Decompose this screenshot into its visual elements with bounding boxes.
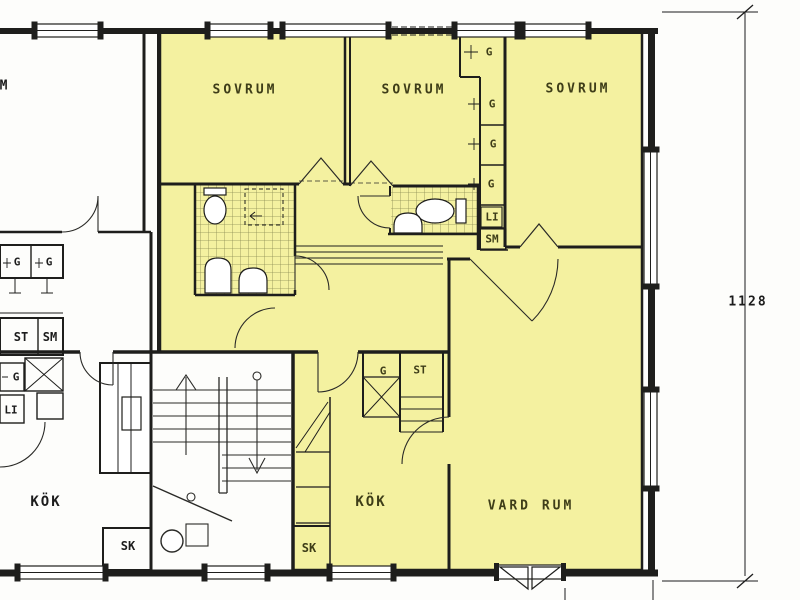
neighbor-apartment-walls [0, 31, 151, 570]
wardrobe-1-label: G [489, 99, 496, 110]
laundry-cupboard-label: SM [485, 234, 498, 245]
wardrobe-top-label: G [486, 47, 493, 58]
bedroom2-label: SOVRUM [382, 84, 447, 97]
neighbor-kitchen-label: KÖK [30, 495, 61, 509]
neighbor-cleaning-closet-label: SK [121, 540, 135, 552]
neighbor-laundry-cupboard-label: SM [43, 331, 57, 343]
linen-closet-label: LI [485, 212, 498, 223]
floor-plan: SOVRUM SOVRUM SOVRUM G G G G LI SM G ST … [0, 0, 800, 600]
hall-storage-label: ST [413, 365, 426, 376]
neighbor-wardrobe-2-label: G [46, 257, 53, 268]
kitchen-label: KÖK [355, 495, 386, 509]
bedroom3-label: SOVRUM [546, 83, 611, 96]
neighbor-wardrobe-1-label: G [14, 257, 21, 268]
wardrobe-3-label: G [488, 179, 495, 190]
bedroom1-label: SOVRUM [213, 84, 278, 97]
neighbor-room-label: M [0, 80, 10, 93]
highlighted-apartment-area [160, 30, 642, 570]
height-dimension-label: 1128 [728, 296, 767, 309]
balcony-door [494, 563, 566, 589]
neighbor-linen-closet-label: LI [4, 405, 17, 416]
neighbor-wardrobe-3-label: G [13, 372, 20, 383]
hall-wardrobe-label: G [380, 366, 387, 377]
wardrobe-2-label: G [490, 139, 497, 150]
staircase [153, 372, 291, 552]
living-room-label: VARD RUM [488, 500, 575, 513]
cleaning-closet-label: SK [302, 542, 316, 554]
neighbor-storage-label: ST [14, 331, 28, 343]
